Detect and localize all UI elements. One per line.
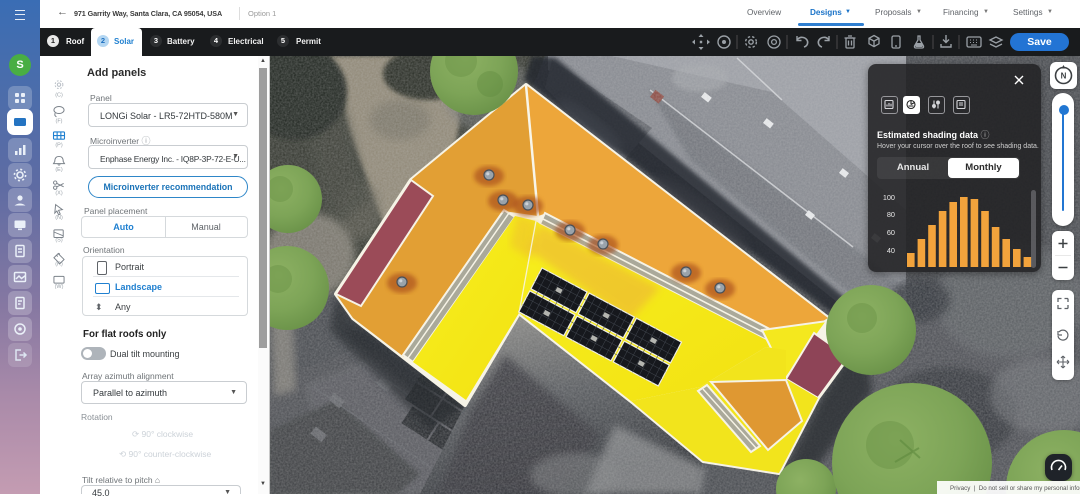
svg-text:(N): (N) — [55, 215, 63, 221]
svg-text:(E): (E) — [55, 167, 62, 173]
svg-text:60: 60 — [887, 228, 895, 237]
svg-text:100: 100 — [883, 193, 895, 202]
svg-text:40: 40 — [887, 246, 895, 255]
svg-text:80: 80 — [887, 210, 895, 219]
svg-text:(F): (F) — [56, 119, 63, 125]
svg-text:(C): (C) — [55, 92, 63, 98]
svg-text:(X): (X) — [55, 190, 62, 196]
svg-text:N: N — [1061, 72, 1067, 81]
svg-text:(W): (W) — [55, 284, 64, 290]
svg-text:(P): (P) — [55, 142, 62, 148]
svg-text:(S): (S) — [55, 238, 62, 244]
